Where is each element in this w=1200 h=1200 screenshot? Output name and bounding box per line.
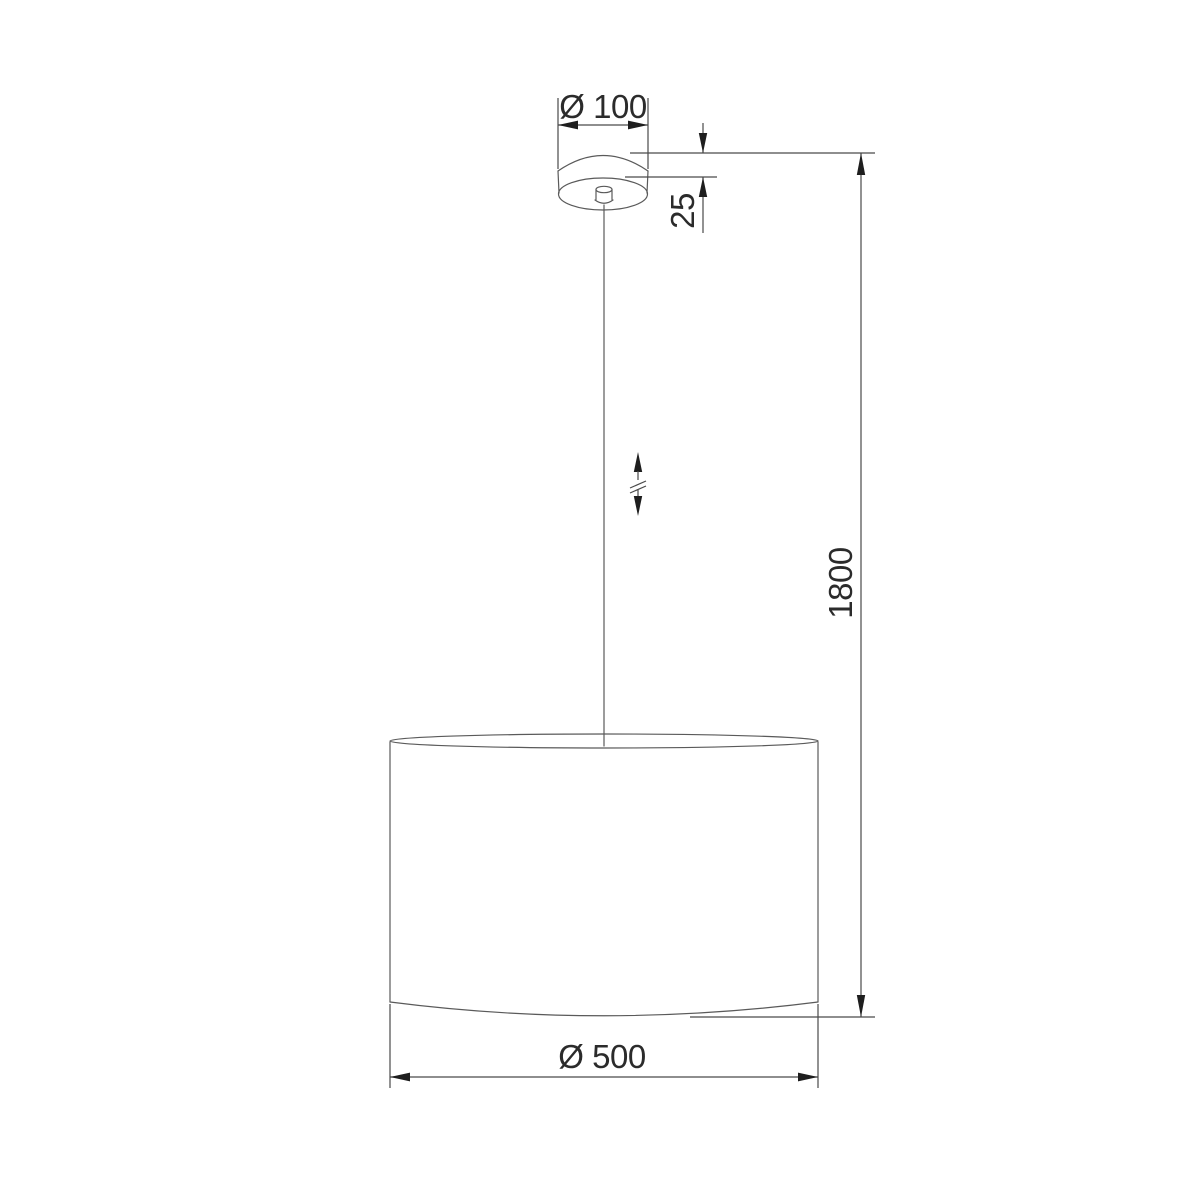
canopy-bottom-face (559, 178, 648, 210)
dimension-label-canopy-height: 25 (664, 193, 701, 229)
dimension-canopy-height: 25 (625, 123, 875, 233)
pendant-lamp-drawing: Ø 100 (0, 0, 1200, 1200)
shade-bottom-rim (390, 1002, 818, 1016)
dimension-canopy-diameter: Ø 100 (558, 88, 648, 169)
technical-drawing-canvas: Ø 100 (0, 0, 1200, 1200)
arrow-right-icon (798, 1073, 818, 1082)
grip-top (596, 186, 612, 192)
arrow-left-icon (390, 1073, 410, 1082)
cylindrical-lampshade (390, 734, 818, 1016)
dimension-label-overall-height: 1800 (822, 547, 859, 619)
adjust-arrow-down-icon (634, 496, 642, 516)
canopy-side-left (558, 171, 559, 193)
canopy-top-rim (558, 156, 648, 172)
arrow-up-icon (857, 153, 865, 175)
cord-grip (595, 186, 613, 203)
canopy-side-right (647, 171, 648, 193)
grip-bottom (595, 200, 613, 203)
dimension-overall-height: 1800 (690, 153, 875, 1017)
dimension-label-shade-diameter: Ø 500 (558, 1038, 646, 1075)
arrow-down-icon (857, 995, 865, 1017)
ceiling-canopy (558, 156, 648, 211)
height-adjust-indicator (630, 452, 646, 516)
adjust-arrow-up-icon (634, 452, 642, 472)
arrow-down-icon (699, 133, 707, 153)
dimension-label-canopy-diameter: Ø 100 (559, 88, 647, 125)
